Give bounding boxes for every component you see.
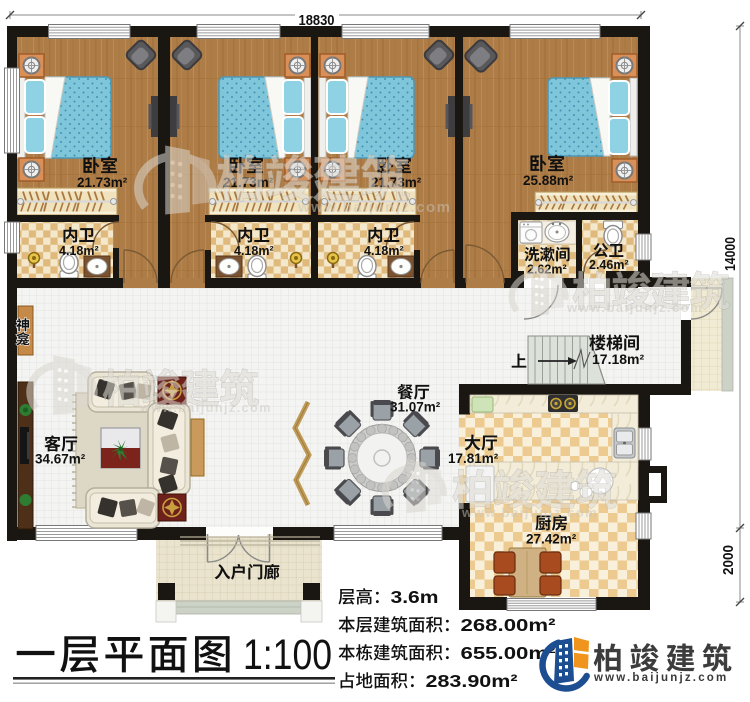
svg-text:283.90m²: 283.90m² [426,671,518,691]
svg-text:21.73m²: 21.73m² [77,175,128,190]
svg-text:31.07m²: 31.07m² [390,400,441,415]
svg-text:4.18m²: 4.18m² [234,244,274,258]
svg-text:34.67m²: 34.67m² [35,452,86,467]
svg-text:www.baijunjz.com: www.baijunjz.com [461,505,598,520]
svg-text:27.42m²: 27.42m² [526,532,577,547]
svg-text:www.baijunjz.com: www.baijunjz.com [139,401,272,415]
svg-text:4.18m²: 4.18m² [364,244,404,258]
svg-text:1:100: 1:100 [243,631,332,679]
svg-text:17.18m²: 17.18m² [592,351,644,367]
svg-text:268.00m²: 268.00m² [461,615,556,635]
svg-text:www.baijunjz.com: www.baijunjz.com [297,199,451,216]
svg-text:3.6m: 3.6m [391,587,439,607]
svg-text:4.18m²: 4.18m² [59,244,99,258]
svg-text:25.88m²: 25.88m² [523,173,574,188]
svg-text:www.baijunjz.com: www.baijunjz.com [593,672,728,684]
svg-text:17.81m²: 17.81m² [448,451,499,466]
svg-text:2.46m²: 2.46m² [589,258,629,272]
svg-text:2000: 2000 [720,545,737,575]
svg-text:18830: 18830 [299,12,335,29]
svg-text:www.baijunjz.com: www.baijunjz.com [566,300,703,315]
svg-text:14000: 14000 [722,237,739,271]
